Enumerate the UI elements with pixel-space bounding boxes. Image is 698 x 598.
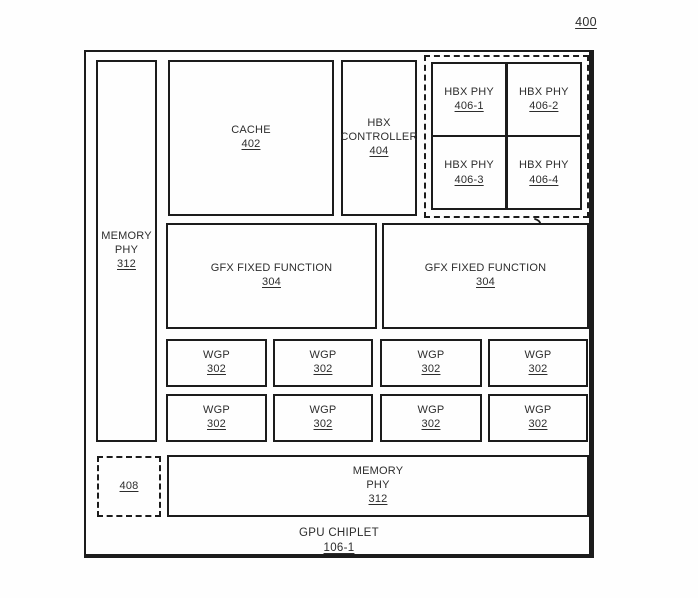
block-label: WGP [418, 349, 445, 363]
block-label: PHY [115, 244, 138, 258]
block-label: GFX FIXED FUNCTION [211, 262, 333, 276]
block-hbx-controller: HBX CONTROLLER 404 [341, 60, 417, 216]
block-gfx-fixed-function-left: GFX FIXED FUNCTION 304 [166, 223, 377, 329]
block-gfx-fixed-function-right: GFX FIXED FUNCTION 304 [382, 223, 589, 329]
block-cache: CACHE 402 [168, 60, 334, 216]
ref-numeral: 304 [476, 276, 495, 290]
block-hbx-phy-3: HBX PHY 406-3 [433, 137, 505, 208]
block-label: MEMORY [353, 465, 404, 479]
block-label: HBX PHY [444, 85, 494, 99]
ref-numeral: 302 [422, 363, 441, 377]
block-label: MEMORY [101, 230, 152, 244]
ref-numeral: 302 [207, 363, 226, 377]
ref-numeral: 408 [120, 480, 139, 494]
block-hbx-phy-1: HBX PHY 406-1 [433, 64, 505, 135]
ref-numeral: 302 [422, 418, 441, 432]
figure-number: 400 [566, 15, 606, 29]
patent-figure-canvas: 400 MEMORY PHY 312 CACHE 402 HBX CONTROL… [0, 0, 698, 598]
hbx-phy-grid: HBX PHY 406-1 HBX PHY 406-2 HBX PHY 406-… [431, 62, 582, 210]
ref-numeral: 302 [314, 418, 333, 432]
ref-numeral: 406-2 [529, 99, 558, 113]
ref-numeral: 404 [370, 145, 389, 159]
block-label: PHY [366, 479, 389, 493]
gpu-chiplet-caption: GPU CHIPLET 106-1 [84, 526, 594, 556]
ref-numeral: 406-1 [455, 99, 484, 113]
block-label: HBX PHY [444, 158, 494, 172]
block-label: WGP [310, 404, 337, 418]
block-408: 408 [97, 456, 161, 517]
block-label: WGP [525, 349, 552, 363]
block-wgp-7: WGP 302 [380, 394, 482, 442]
block-hbx-phy-4: HBX PHY 406-4 [508, 137, 580, 208]
block-label: CACHE [231, 124, 271, 138]
block-wgp-5: WGP 302 [166, 394, 267, 442]
block-wgp-8: WGP 302 [488, 394, 588, 442]
block-label: WGP [203, 349, 230, 363]
block-label: HBX [367, 117, 390, 131]
block-wgp-2: WGP 302 [273, 339, 373, 387]
block-wgp-1: WGP 302 [166, 339, 267, 387]
block-hbx-phy-2: HBX PHY 406-2 [508, 64, 580, 135]
ref-numeral: 302 [207, 418, 226, 432]
ref-numeral: 302 [529, 363, 548, 377]
caption-ref-numeral: 106-1 [84, 541, 594, 556]
block-label: HBX PHY [519, 85, 569, 99]
ref-numeral: 312 [117, 258, 136, 272]
ref-numeral: 302 [529, 418, 548, 432]
block-label: WGP [310, 349, 337, 363]
ref-numeral: 406-4 [529, 173, 558, 187]
ref-numeral: 406-3 [455, 173, 484, 187]
block-label: HBX PHY [519, 158, 569, 172]
block-wgp-6: WGP 302 [273, 394, 373, 442]
ref-numeral: 312 [369, 493, 388, 507]
block-wgp-4: WGP 302 [488, 339, 588, 387]
block-label: GFX FIXED FUNCTION [425, 262, 547, 276]
ref-numeral: 302 [314, 363, 333, 377]
caption-title: GPU CHIPLET [84, 526, 594, 541]
ref-numeral: 304 [262, 276, 281, 290]
block-label: WGP [203, 404, 230, 418]
ref-numeral: 402 [242, 138, 261, 152]
block-label: WGP [525, 404, 552, 418]
block-memory-phy-left: MEMORY PHY 312 [96, 60, 157, 442]
block-wgp-3: WGP 302 [380, 339, 482, 387]
block-label: WGP [418, 404, 445, 418]
block-memory-phy-bottom: MEMORY PHY 312 [167, 455, 589, 517]
block-label: CONTROLLER [340, 131, 417, 145]
